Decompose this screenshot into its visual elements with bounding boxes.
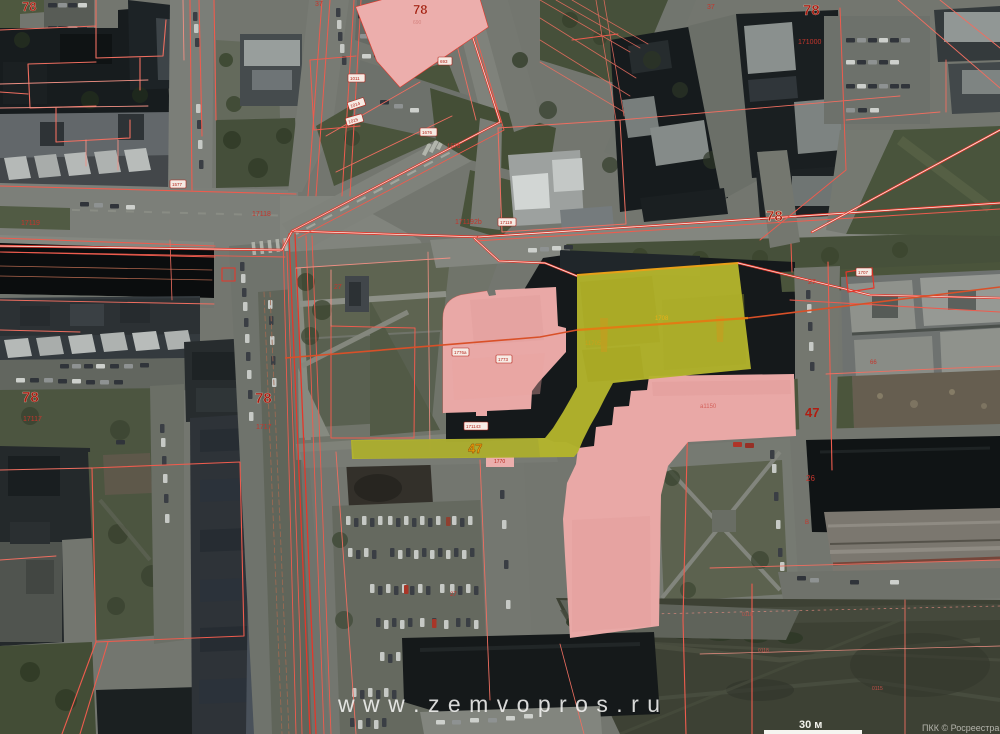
svg-text:17119: 17119 bbox=[21, 220, 40, 227]
svg-text:78: 78 bbox=[22, 0, 36, 14]
svg-text:17118: 17118 bbox=[252, 211, 271, 218]
svg-text:690: 690 bbox=[413, 20, 422, 26]
svg-text:17117: 17117 bbox=[23, 416, 42, 423]
svg-text:1707: 1707 bbox=[858, 270, 869, 275]
svg-text:1773: 1773 bbox=[498, 357, 509, 362]
svg-text:47: 47 bbox=[468, 441, 482, 456]
svg-text:78: 78 bbox=[413, 2, 427, 17]
svg-text:693: 693 bbox=[440, 59, 448, 64]
svg-text:171192b: 171192b bbox=[455, 219, 482, 226]
svg-text:11705: 11705 bbox=[585, 341, 602, 347]
svg-text:1770: 1770 bbox=[494, 459, 505, 465]
svg-text:66: 66 bbox=[870, 360, 877, 366]
svg-text:30 м: 30 м bbox=[799, 719, 822, 731]
svg-text:27: 27 bbox=[450, 592, 457, 598]
svg-text:171000: 171000 bbox=[798, 39, 821, 46]
svg-text:27: 27 bbox=[334, 284, 342, 291]
svg-text:B: B bbox=[805, 520, 809, 526]
svg-text:37: 37 bbox=[315, 1, 323, 8]
svg-text:17119: 17119 bbox=[500, 220, 513, 225]
svg-text:1708: 1708 bbox=[655, 316, 669, 322]
svg-text:w w w . z e m v o p r o s . r: w w w . z e m v o p r o s . r u bbox=[337, 691, 660, 717]
svg-text:0118: 0118 bbox=[742, 612, 753, 618]
svg-text:1011: 1011 bbox=[350, 76, 360, 81]
svg-text:78: 78 bbox=[803, 2, 820, 19]
svg-text:78: 78 bbox=[22, 389, 39, 406]
svg-text:1676: 1676 bbox=[422, 130, 433, 135]
svg-text:26: 26 bbox=[806, 474, 815, 483]
svg-text:0115: 0115 bbox=[872, 686, 883, 692]
svg-text:47: 47 bbox=[805, 405, 819, 420]
svg-text:a1150: a1150 bbox=[700, 404, 717, 410]
svg-text:171143: 171143 bbox=[466, 424, 481, 429]
svg-text:27: 27 bbox=[808, 279, 816, 286]
svg-text:1717: 1717 bbox=[256, 424, 272, 431]
svg-text:1576: 1576 bbox=[447, 144, 461, 150]
svg-text:37: 37 bbox=[707, 4, 715, 11]
svg-text:1577: 1577 bbox=[172, 182, 183, 187]
svg-text:ПКК © Росреестра: ПКК © Росреестра bbox=[922, 723, 999, 733]
svg-text:78: 78 bbox=[766, 208, 783, 225]
svg-text:1776a: 1776a bbox=[454, 350, 467, 355]
svg-text:0118: 0118 bbox=[758, 648, 769, 654]
svg-text:78: 78 bbox=[255, 390, 272, 407]
